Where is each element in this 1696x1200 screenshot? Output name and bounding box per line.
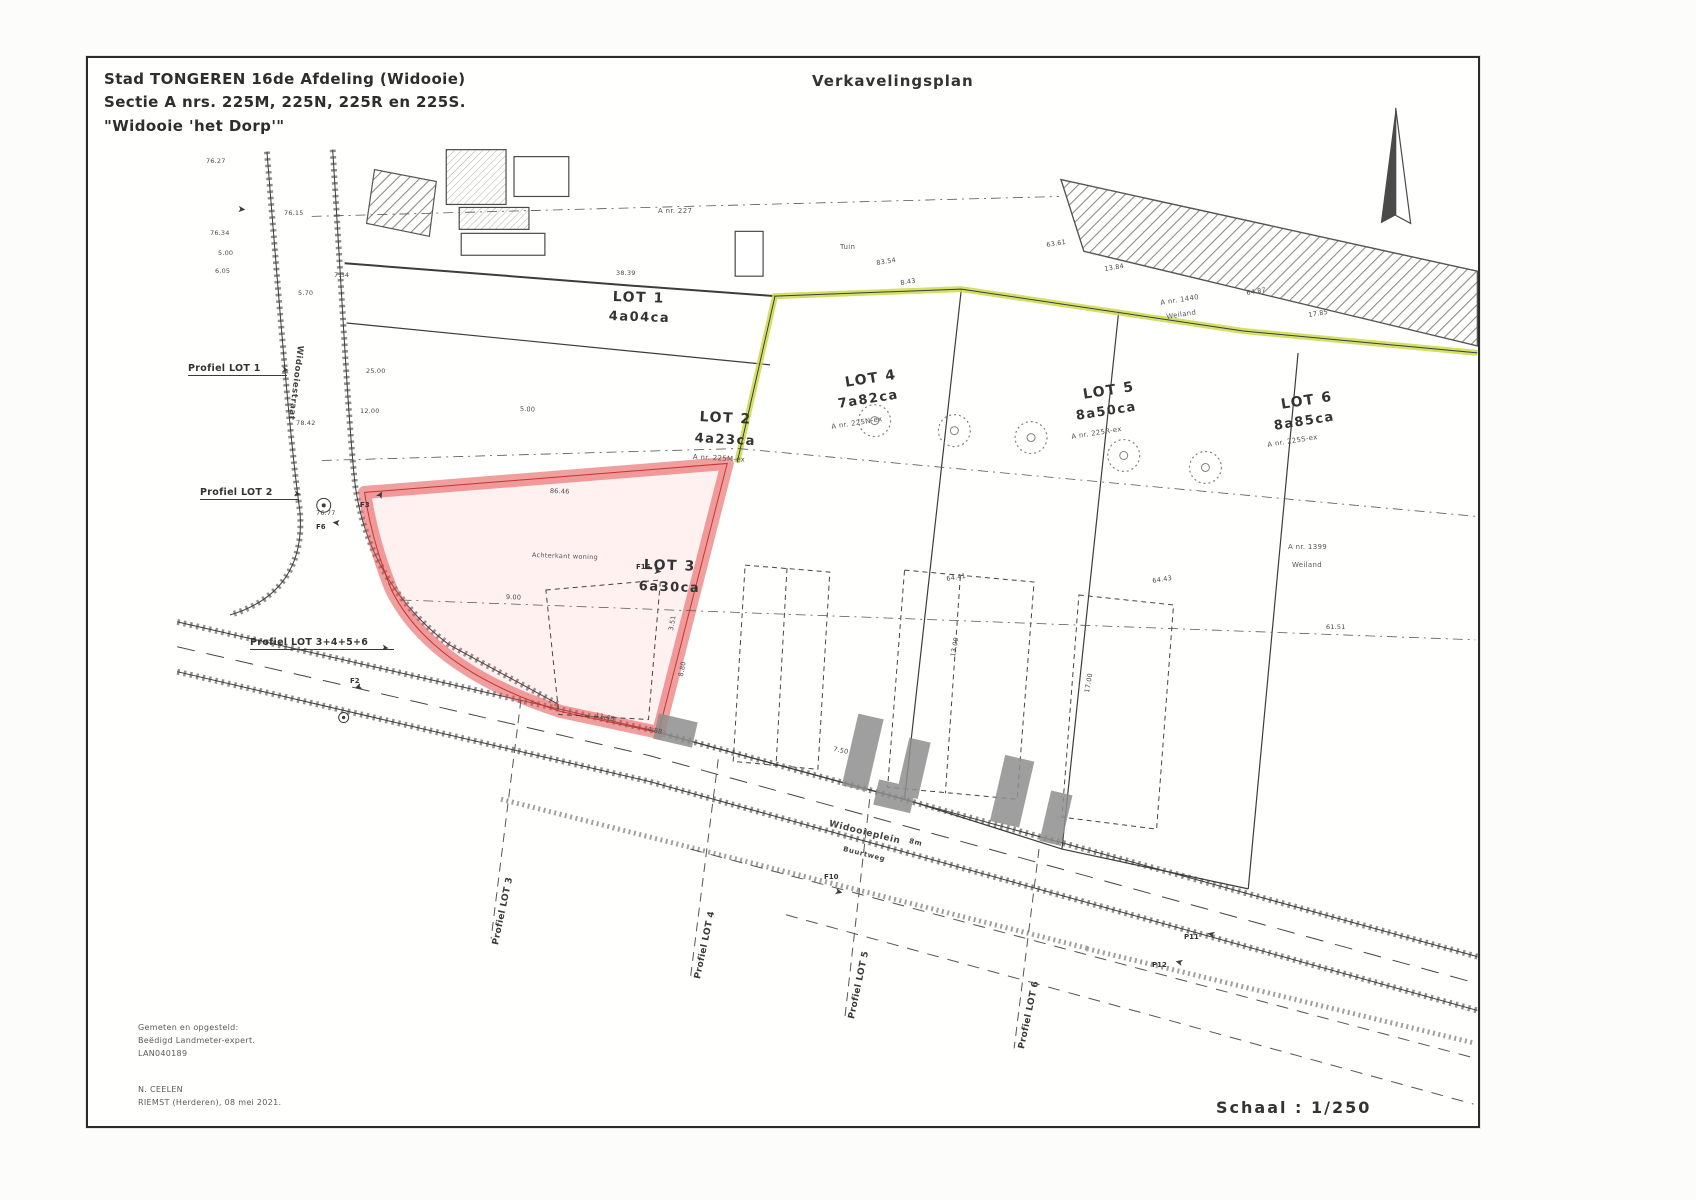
map-label: 61.51 [1326,624,1346,631]
map-label: F15 [636,564,651,572]
title-line-3: "Widooie 'het Dorp'" [104,115,466,138]
map-label: Buurtweg [842,846,886,864]
direction-arrow-icon: ➤ [237,204,246,216]
map-label: Widooiestraat [286,345,304,421]
direction-arrow-icon: ➤ [352,680,364,693]
title-line-2: Sectie A nrs. 225M, 225N, 225R en 225S. [104,91,466,114]
map-label: 8.80 [678,661,688,677]
direction-arrow-icon: ➤ [833,886,844,899]
map-label: 3.51 [668,615,678,631]
map-label: 6a30ca [639,580,701,596]
map-label: 64.87 [1246,287,1266,297]
plan-title: Verkavelingsplan [812,72,974,90]
map-label: 7.50 [833,746,849,756]
map-label: 8.43 [900,278,916,287]
signature-line-2: RIEMST (Herderen), 08 mei 2021. [138,1097,281,1110]
map-label: LOT 1 [612,290,665,307]
map-label: A nr. 225M-ex [693,454,746,464]
map-label: Profiel LOT 5 [848,950,872,1020]
map-label: 76.27 [206,158,226,165]
map-label: F6 [316,524,326,532]
map-label: LOT 3 [643,558,696,575]
map-label: 13.84 [1104,263,1124,273]
labels-overlay: Stad TONGEREN 16de Afdeling (Widooie) Se… [88,58,1478,1126]
map-label: F3 [360,502,370,510]
signature-line-1: N. CEELEN [138,1084,281,1097]
map-label: A nr. 225N-ex [831,416,883,432]
map-label: 76.15 [284,210,304,217]
map-label: Weiland [1166,309,1197,321]
scanned-plan-page: { "document": { "type": "Verkavelingspla… [0,0,1696,1200]
direction-arrow-icon: ➤ [281,366,290,377]
direction-arrow-icon: ➤ [1174,955,1185,968]
map-label: 6.05 [215,268,230,275]
map-label: 4a23ca [694,432,756,449]
map-label: 25.00 [366,368,386,375]
map-label: A nr. 1399 [1288,544,1327,552]
map-label: 64.41 [946,573,966,583]
map-label: A nr. 225R-ex [1071,426,1122,442]
map-label: 11.48 [595,712,616,723]
map-label: 5.00 [218,250,233,257]
direction-arrow-icon: ➤ [381,644,390,655]
map-label: 17.85 [1308,309,1328,319]
map-label: A nr. 225S-ex [1267,434,1318,450]
map-label: 4.88 [647,726,663,736]
map-label: Widooieplein [828,820,902,847]
map-label: 63.61 [1046,239,1066,249]
map-label: 9.00 [506,594,522,602]
map-label: 5.70 [298,290,313,297]
surveyor-line-1: Gemeten en opgesteld: [138,1022,255,1035]
surveyor-line-3: LAN040189 [138,1048,255,1061]
map-label: 8a50ca [1075,400,1138,424]
map-label: Profiel LOT 3 [492,876,516,946]
map-label: Profiel LOT 4 [694,910,718,980]
signature-block: N. CEELEN RIEMST (Herderen), 08 mei 2021… [138,1084,281,1110]
map-label: 64.43 [1152,575,1172,585]
scale-label: Schaal : 1/250 [1216,1098,1371,1117]
map-label: Achterkant woning [532,552,598,561]
map-label: 13.00 [950,637,960,658]
map-label: 8m [908,838,923,849]
direction-arrow-icon: ➤ [374,489,388,502]
direction-arrow-icon: ➤ [1206,927,1217,940]
map-label: 78.42 [296,420,316,427]
map-label: A nr. 1440 [1160,294,1200,308]
map-label: 76.34 [210,230,230,237]
direction-arrow-icon: ➤ [653,566,662,578]
map-label: Weiland [1292,562,1322,570]
map-label: Tuin [840,244,855,252]
map-label: 83.54 [876,257,896,267]
map-label: Profiel LOT 3+4+5+6 [250,638,394,650]
map-label: LOT 2 [699,410,752,428]
map-label: P11 [1184,934,1199,942]
direction-arrow-icon: ➤ [293,490,302,501]
direction-arrow-icon: ➤ [332,516,341,528]
plan-sheet: Stad TONGEREN 16de Afdeling (Widooie) Se… [86,56,1480,1128]
map-label: A nr. 227 [658,208,692,216]
map-label: F10 [824,874,839,882]
map-label: Profiel LOT 1 [188,364,287,376]
map-label: Profiel LOT 2 [200,488,299,500]
map-label: 4a04ca [609,310,671,326]
map-label: 7.34 [334,272,349,279]
map-label: 38.39 [616,270,636,277]
surveyor-line-2: Beëdigd Landmeter-expert. [138,1035,255,1048]
map-label: Profiel LOT 6 [1018,980,1042,1050]
map-label: 17.00 [1084,673,1094,694]
map-label: 8a85ca [1273,410,1336,434]
map-label: 86.46 [550,488,570,496]
map-label: P12 [1152,962,1167,970]
surveyor-block: Gemeten en opgesteld: Beëdigd Landmeter-… [138,1022,255,1060]
title-block: Stad TONGEREN 16de Afdeling (Widooie) Se… [104,68,466,138]
title-line-1: Stad TONGEREN 16de Afdeling (Widooie) [104,68,466,91]
map-label: 5.00 [520,406,536,414]
map-label: 12.00 [360,408,380,415]
map-label: 7a82ca [837,388,900,412]
